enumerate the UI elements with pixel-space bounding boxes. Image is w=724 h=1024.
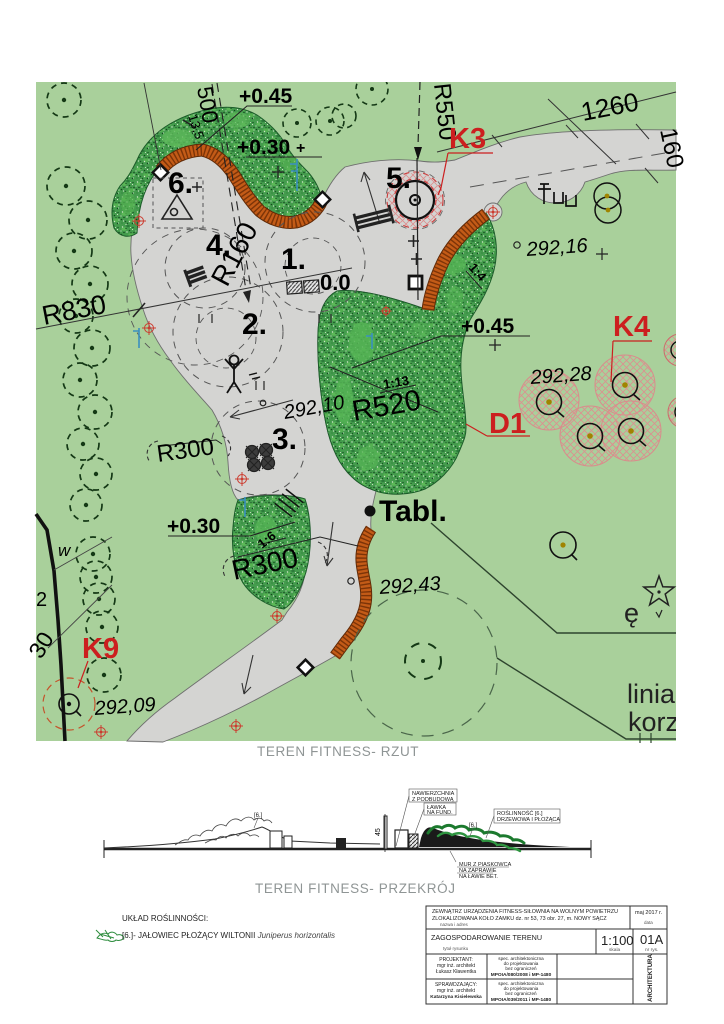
svg-text:NA ŁAWIE BET.: NA ŁAWIE BET.	[459, 874, 498, 880]
svg-text:0.0: 0.0	[320, 270, 351, 295]
svg-text:w: w	[58, 541, 72, 560]
svg-text:DRZEWOWA I PŁOŻĄCA: DRZEWOWA I PŁOŻĄCA	[497, 816, 560, 823]
svg-text:data: data	[644, 920, 653, 925]
svg-text:292,43: 292,43	[378, 573, 442, 599]
svg-text:K3: K3	[449, 123, 486, 155]
svg-text:TEREN FITNESS- RZUT: TEREN FITNESS- RZUT	[257, 744, 419, 759]
svg-text:1:100: 1:100	[601, 933, 634, 948]
svg-text:maj 2017 r.: maj 2017 r.	[635, 910, 663, 916]
svg-text:292,28: 292,28	[529, 363, 593, 389]
svg-text:1.: 1.	[281, 243, 306, 276]
svg-text:nazwa i adres: nazwa i adres	[440, 922, 469, 927]
svg-text:TEREN FITNESS- PRZEKRÓJ: TEREN FITNESS- PRZEKRÓJ	[255, 881, 456, 896]
svg-text:K4: K4	[613, 311, 650, 343]
svg-text:Tabl.: Tabl.	[379, 495, 447, 528]
svg-text:MPOIA/039/2011 i MP-1480: MPOIA/039/2011 i MP-1480	[491, 997, 552, 1003]
svg-text:korz: korz	[628, 707, 679, 737]
svg-text:D1: D1	[489, 408, 526, 440]
svg-text:ZEWNĄTRZ URZĄDZENIA FITNESS-SI: ZEWNĄTRZ URZĄDZENIA FITNESS-SIŁOWNIA NA …	[432, 909, 618, 915]
svg-text:[6.]- JAŁOWIEC PŁOŻĄCY WILTONI: [6.]- JAŁOWIEC PŁOŻĄCY WILTONII Juniperu…	[122, 931, 335, 940]
svg-text:+0.45: +0.45	[461, 315, 514, 338]
svg-text:NA FUND.: NA FUND.	[427, 810, 453, 816]
svg-text:2.: 2.	[242, 308, 267, 341]
svg-text:ROŚLINNOŚĆ [6.]: ROŚLINNOŚĆ [6.]	[497, 809, 543, 817]
svg-text:[6.]: [6.]	[469, 823, 478, 829]
svg-text:292,09: 292,09	[93, 694, 157, 720]
svg-text:bez ograniczeń: bez ograniczeń	[505, 966, 537, 971]
svg-text:+0.30: +0.30	[167, 515, 220, 538]
svg-text:+0.45: +0.45	[239, 85, 292, 108]
svg-text:[6.]: [6.]	[254, 813, 263, 819]
svg-text:bez ograniczeń: bez ograniczeń	[505, 991, 537, 996]
svg-text:mgr inż. architekt: mgr inż. architekt	[437, 988, 476, 994]
svg-text:2: 2	[36, 589, 47, 611]
svg-text:UKŁAD ROŚLINNOŚCI:: UKŁAD ROŚLINNOŚCI:	[122, 914, 208, 923]
svg-text:tytuł rysunku: tytuł rysunku	[443, 946, 469, 951]
svg-text:+: +	[296, 140, 305, 157]
svg-text:Łukasz Kławentka: Łukasz Kławentka	[436, 969, 477, 975]
svg-text:nr rys.: nr rys.	[645, 947, 658, 953]
svg-text:Z PODBUDOWĄ: Z PODBUDOWĄ	[412, 797, 454, 803]
svg-text:6.: 6.	[168, 167, 193, 200]
svg-text:5.: 5.	[386, 162, 411, 195]
svg-text:K9: K9	[82, 633, 119, 665]
svg-text:3.: 3.	[272, 423, 297, 456]
svg-text:+0.30: +0.30	[237, 136, 290, 159]
svg-text:ARCHITEKTURA: ARCHITEKTURA	[648, 954, 654, 1002]
svg-text:ZAGOSPODAROWANIE TERENU: ZAGOSPODAROWANIE TERENU	[431, 933, 542, 942]
svg-text:ę: ę	[624, 598, 639, 628]
svg-text:linia: linia	[627, 679, 676, 709]
svg-text:292,16: 292,16	[525, 235, 589, 261]
svg-text:MPOIA/080/2008 i MP-1480: MPOIA/080/2008 i MP-1480	[491, 972, 552, 978]
svg-text:Katarzyna Kisielewska: Katarzyna Kisielewska	[430, 994, 482, 1000]
svg-text:45: 45	[375, 828, 382, 836]
svg-text:01A: 01A	[640, 932, 663, 947]
svg-text:skala: skala	[609, 947, 621, 953]
